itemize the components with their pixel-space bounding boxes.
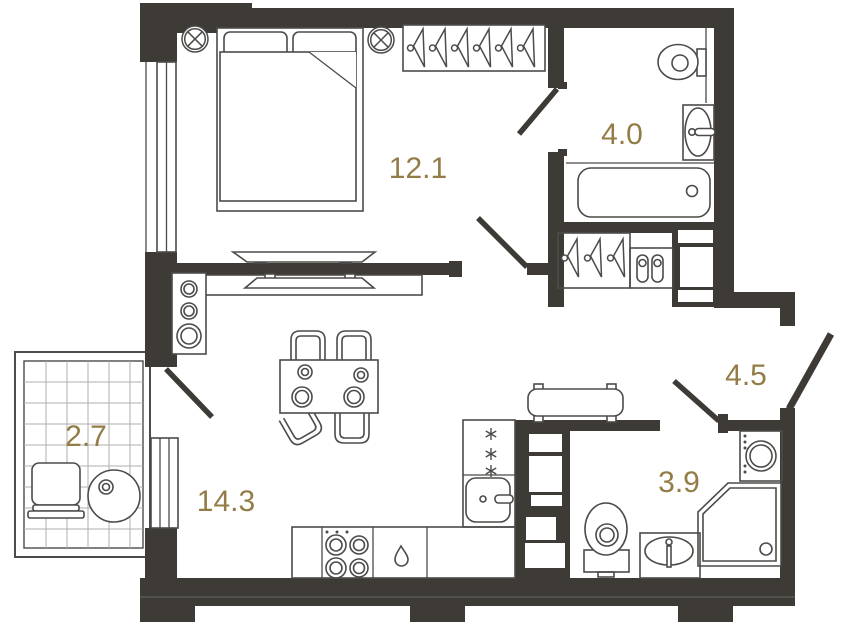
room-label-hallway: 4.5 [725,359,767,392]
hall-closet [558,233,673,288]
sink-shower-room [640,533,700,578]
room-label-bedroom: 12.1 [389,152,447,185]
shelving-unit [172,273,206,354]
bed [217,28,363,211]
chair [335,412,369,443]
door-leaf-balcony [166,369,212,417]
door-leaf-bathroom [519,89,557,134]
fridge [486,428,496,477]
shower-cabin [698,483,781,566]
washing-machine [740,431,782,481]
room-label-bathroom: 4.0 [601,118,643,151]
hanger-icon [608,239,625,277]
bathtub [566,163,714,217]
room-label-balcony: 2.7 [65,420,107,453]
room-label-living-kitchen: 14.3 [197,485,255,518]
kitchen-sink [466,478,513,522]
ceiling-light-icon [368,27,394,53]
toilet-shower-room [584,503,629,577]
door-leaf-shower-room [674,381,719,421]
closet-hangers [562,239,625,277]
living-room-tv [245,278,374,288]
balcony-armchair [28,463,84,518]
balcony-table [88,470,140,522]
chair [337,331,371,362]
entrance-door-leaf [789,334,831,409]
sink-drop-icon [395,546,408,566]
ceiling-light-icon [182,26,208,52]
wardrobe [403,25,545,71]
bedroom-tv [233,252,375,263]
dining-set [279,331,378,447]
floor-plan-canvas: 12.1 4.0 2.7 14.3 4.5 3.9 [0,0,855,622]
blanket [220,52,356,201]
toilet-main [658,45,706,80]
shower-room-fixtures [584,431,782,578]
slippers-icon [637,255,663,282]
floor-plan: 12.1 4.0 2.7 14.3 4.5 3.9 [0,0,855,622]
stove [326,531,369,579]
living-room-window [151,438,178,528]
hanger-icon [585,239,602,277]
balcony [15,352,150,557]
hanger-icon [562,239,579,277]
tv-console [205,274,422,295]
room-label-shower-room: 3.9 [658,466,700,499]
bedroom-window [146,62,176,252]
sink-main [683,105,715,160]
chair [291,331,325,362]
door-leaf-bedroom [478,218,527,267]
hallway-bench [528,384,623,422]
